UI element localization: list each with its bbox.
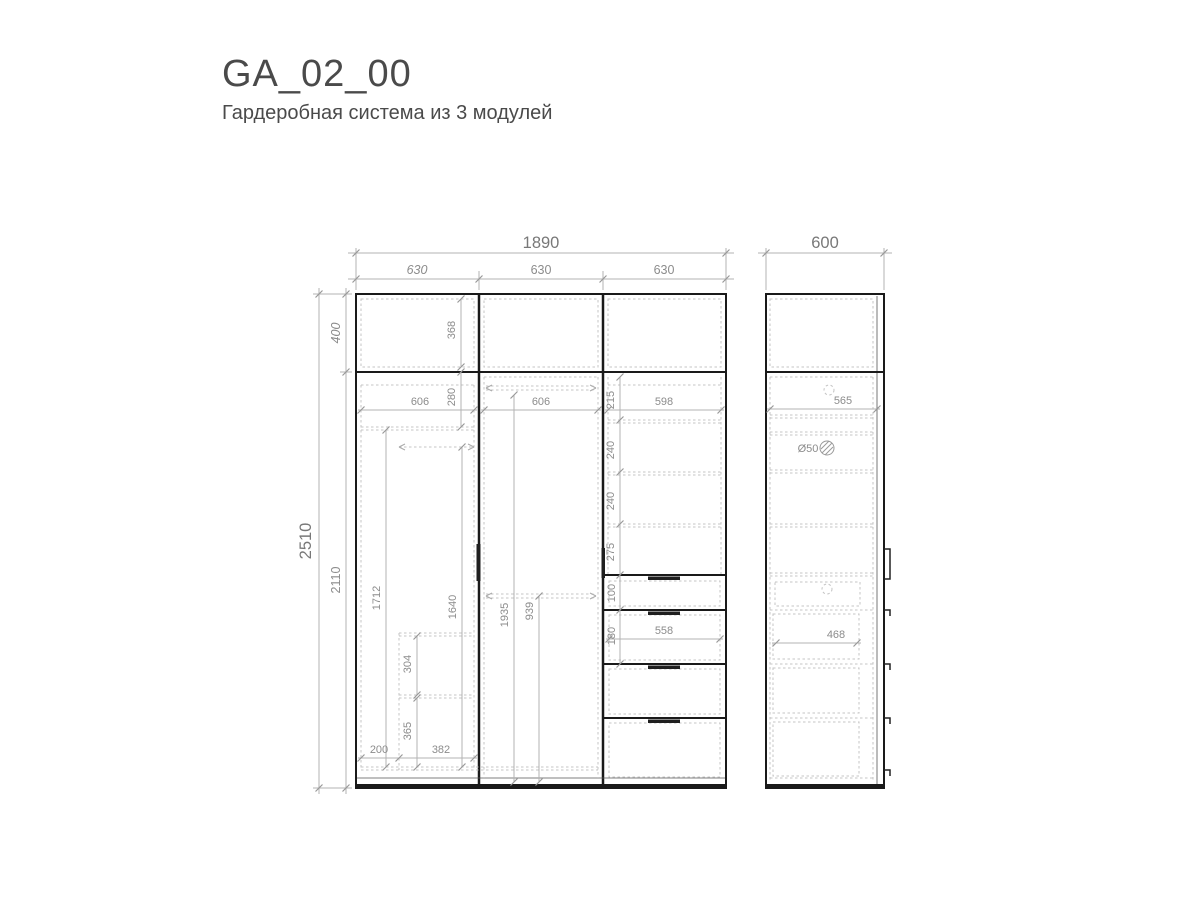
dim-left-height-1: 1712 [371,586,383,610]
front-top-section: 368 [361,296,721,371]
dim-left-gap-lower: 365 [402,722,414,740]
dim-mid-door-height: 1935 [499,603,511,627]
dim-top-section-height: 400 [329,323,343,344]
technical-drawing: 1890 630 630 630 2510 400 2110 [0,0,1200,900]
drawer-handle-4 [648,720,680,724]
dim-side-hole: Ø50 [798,443,819,455]
dim-left-height-2: 1640 [447,595,459,619]
dim-right-gap-2: 240 [605,441,617,459]
front-top-dimensions: 1890 630 630 630 [348,234,734,283]
dim-right-drawer-1: 100 [606,584,618,602]
side-carcass [766,294,884,788]
dim-mid-rod-height: 939 [524,602,536,620]
dim-left-bottom-w1: 200 [370,744,388,756]
dim-module-width-3: 630 [654,263,675,277]
dim-module-width-1: 630 [407,263,428,277]
front-left-dimensions: 2510 400 2110 [297,288,350,794]
dim-main-section-height: 2110 [329,567,343,594]
side-view: 600 [758,234,892,788]
dim-right-gap-3: 240 [605,492,617,510]
drawer-handle-1 [648,577,680,581]
dim-right-drawer-2: 180 [606,627,618,645]
drawing-sheet: GA_02_00 Гардеробная система из 3 модуле… [0,0,1200,900]
side-dimensions-inner: 565 Ø50 468 [767,395,881,647]
dim-side-depth: 600 [811,234,839,252]
front-extension-lines [313,248,726,788]
dim-right-drawer-width: 558 [655,625,673,637]
drawer-handle-3 [648,666,680,670]
dim-total-width: 1890 [523,234,560,252]
side-interior [770,377,873,780]
dim-total-height: 2510 [297,523,315,560]
front-right-module: 598 215 240 240 275 100 180 558 [602,374,727,778]
door-handle [477,544,481,581]
front-middle-module: 606 1935 939 [477,377,602,786]
dim-right-inner-width: 598 [655,396,673,408]
dim-right-gap-1: 215 [605,391,617,409]
front-view: 1890 630 630 630 2510 400 2110 [297,234,734,794]
dim-left-inner-width: 606 [411,396,429,408]
dim-right-gap-4: 275 [605,543,617,561]
dim-left-top-shelf: 280 [446,388,458,406]
dim-left-bottom-w2: 382 [432,744,450,756]
dim-top-inner-height: 368 [446,321,458,339]
dim-side-inner-depth: 565 [834,395,852,407]
dim-module-width-2: 630 [531,263,552,277]
dim-left-gap-upper: 304 [402,655,414,673]
dim-side-drawer-depth: 468 [827,629,845,641]
drawer-handle-2 [648,612,680,616]
side-dimensions-top: 600 [758,234,892,290]
dim-mid-inner-width: 606 [532,396,550,408]
